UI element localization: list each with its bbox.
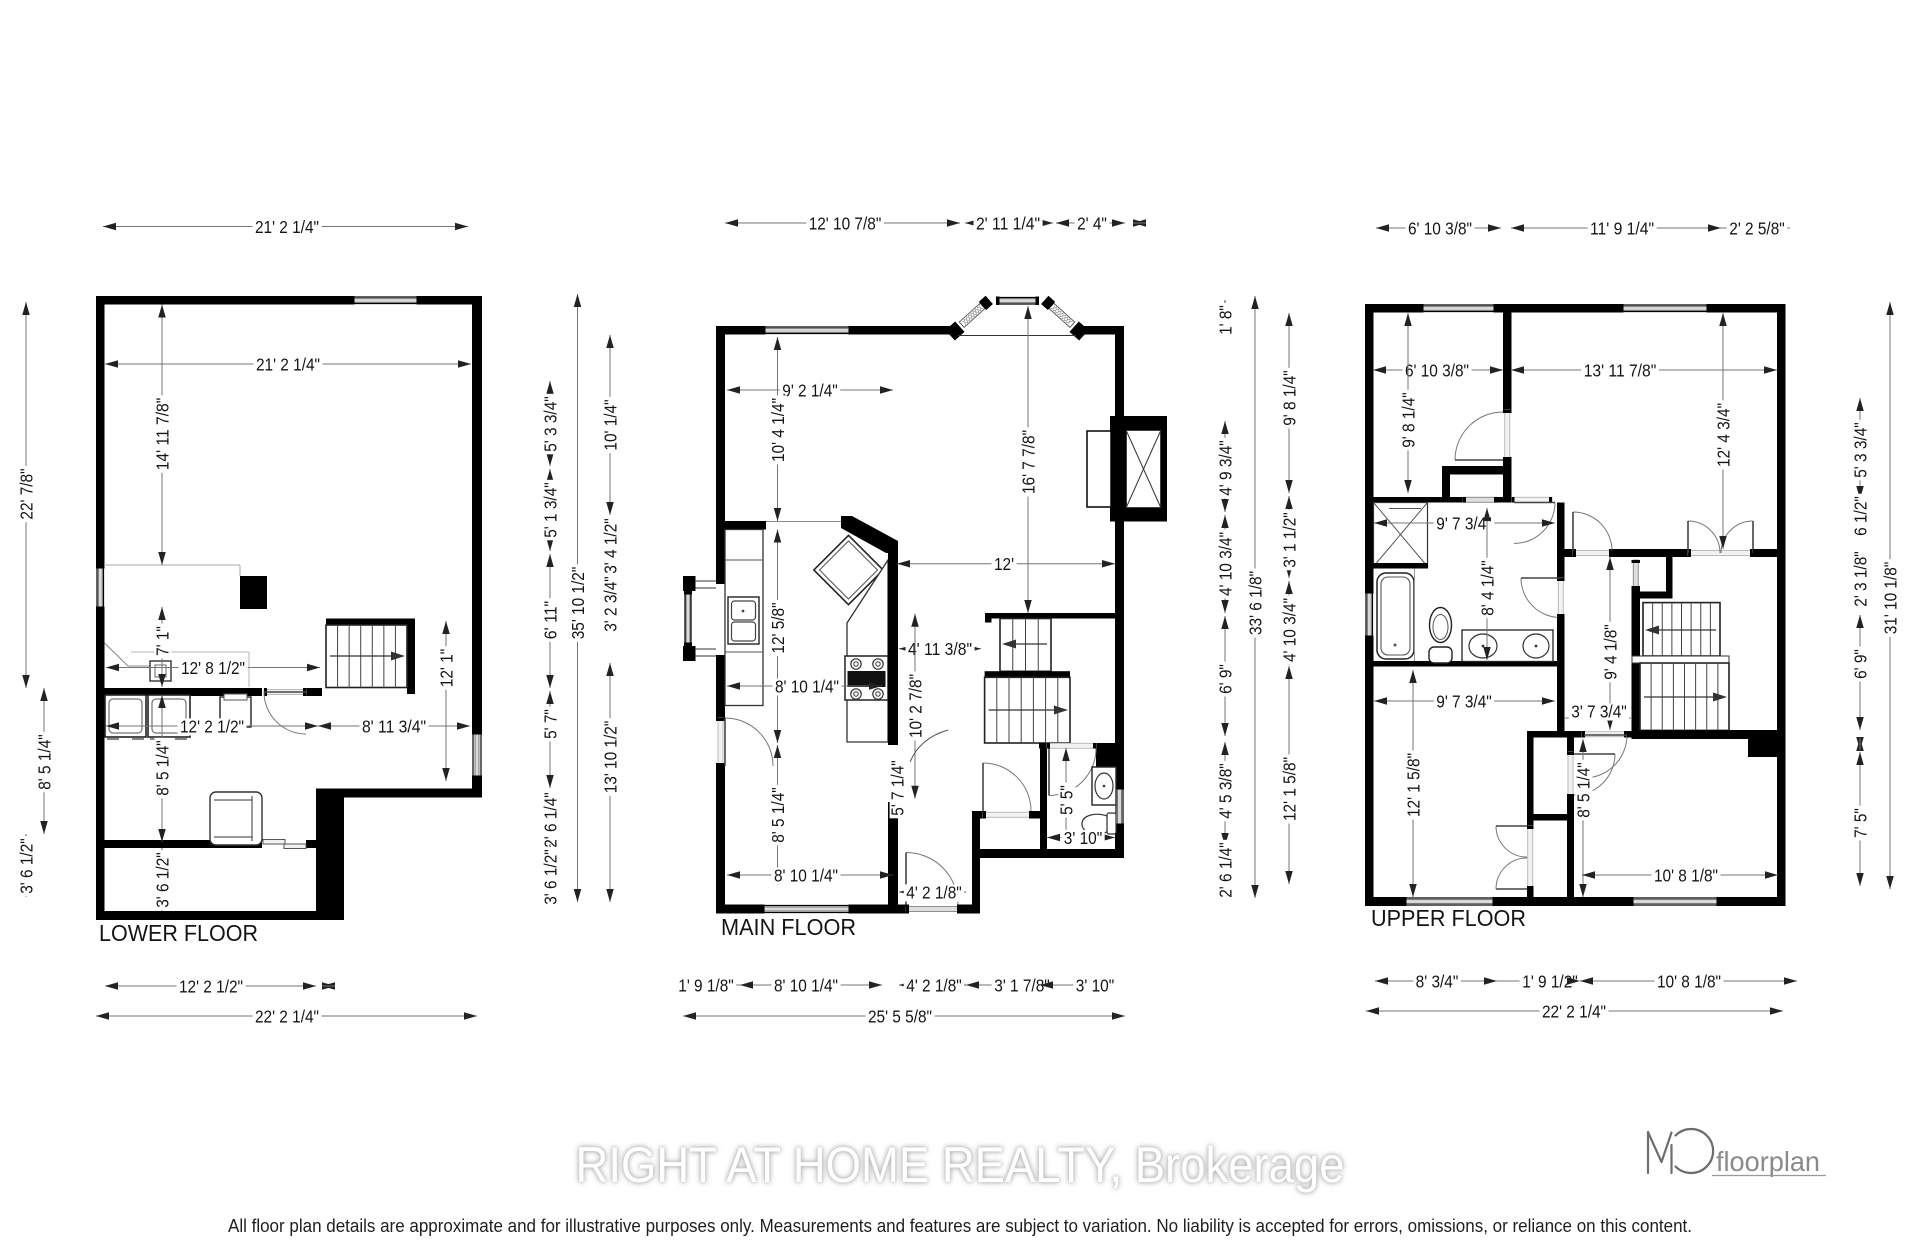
svg-text:22' 2 1/4": 22' 2 1/4" (1542, 1001, 1606, 1021)
svg-text:12': 12' (994, 554, 1014, 574)
svg-text:13' 10 1/2": 13' 10 1/2" (600, 721, 620, 794)
svg-text:4' 9 3/4": 4' 9 3/4" (1215, 440, 1235, 496)
svg-text:2' 6 1/4": 2' 6 1/4" (540, 792, 560, 848)
svg-text:3' 2 3/4": 3' 2 3/4" (600, 576, 620, 632)
svg-text:4' 10 3/4": 4' 10 3/4" (1215, 532, 1235, 596)
svg-text:21' 2 1/4": 21' 2 1/4" (256, 354, 320, 374)
svg-text:12' 1": 12' 1" (436, 649, 456, 687)
svg-text:8' 10 1/4": 8' 10 1/4" (774, 865, 838, 885)
svg-text:8' 4 1/4": 8' 4 1/4" (1477, 560, 1497, 616)
svg-text:5' 1 3/4": 5' 1 3/4" (540, 482, 560, 538)
svg-text:7' 5": 7' 5" (1850, 808, 1870, 838)
svg-text:5' 7": 5' 7" (540, 709, 560, 739)
svg-text:5' 3 3/4": 5' 3 3/4" (1850, 422, 1870, 478)
svg-text:21' 2 1/4": 21' 2 1/4" (255, 217, 319, 237)
svg-text:4' 5 3/8": 4' 5 3/8" (1215, 763, 1235, 819)
svg-text:3' 7 3/4": 3' 7 3/4" (1571, 701, 1627, 721)
svg-text:12' 2 1/2": 12' 2 1/2" (179, 976, 243, 996)
svg-text:6' 11": 6' 11" (540, 601, 560, 639)
svg-text:UPPER FLOOR: UPPER FLOOR (1371, 905, 1526, 931)
svg-text:12' 4 3/4": 12' 4 3/4" (1713, 403, 1733, 467)
svg-text:8' 10 1/4": 8' 10 1/4" (775, 676, 839, 696)
svg-text:2' 11 1/4": 2' 11 1/4" (976, 213, 1040, 233)
svg-text:1' 9 1/8": 1' 9 1/8" (678, 975, 734, 995)
svg-text:4' 2 1/8": 4' 2 1/8" (906, 882, 962, 902)
svg-text:floorplan: floorplan (1716, 1146, 1820, 1177)
svg-text:3' 6 1/2": 3' 6 1/2" (152, 852, 172, 908)
svg-text:8' 5 1/4": 8' 5 1/4" (768, 787, 788, 843)
svg-text:4' 11 3/8": 4' 11 3/8" (908, 639, 972, 659)
svg-text:5' 7 1/4": 5' 7 1/4" (888, 760, 908, 816)
svg-text:33' 6 1/8": 33' 6 1/8" (1245, 571, 1265, 635)
svg-text:10' 8 1/8": 10' 8 1/8" (1657, 971, 1721, 991)
svg-text:12' 5/8": 12' 5/8" (768, 602, 788, 653)
svg-text:22' 7/8": 22' 7/8" (16, 468, 36, 519)
svg-text:MAIN FLOOR: MAIN FLOOR (721, 914, 856, 940)
svg-text:2' 4": 2' 4" (1077, 213, 1107, 233)
svg-text:13' 11 7/8": 13' 11 7/8" (1584, 360, 1657, 380)
svg-text:6' 9": 6' 9" (1215, 664, 1235, 694)
svg-text:All floor plan details are app: All floor plan details are approximate a… (228, 1216, 1692, 1236)
svg-text:3' 6 1/2": 3' 6 1/2" (540, 849, 560, 905)
svg-text:3' 10": 3' 10" (1076, 975, 1114, 995)
svg-text:3' 6 1/2": 3' 6 1/2" (16, 838, 36, 894)
svg-text:16' 7 7/8": 16' 7 7/8" (1018, 430, 1038, 494)
svg-text:6' 10 3/8": 6' 10 3/8" (1405, 360, 1469, 380)
svg-text:9' 8 1/4": 9' 8 1/4" (1279, 370, 1299, 426)
svg-text:31' 10 1/8": 31' 10 1/8" (1880, 562, 1900, 635)
svg-text:7' 1": 7' 1" (152, 626, 172, 656)
svg-text:10' 1/4": 10' 1/4" (600, 399, 620, 450)
svg-text:12' 10 7/8": 12' 10 7/8" (809, 213, 882, 233)
svg-text:8' 11 3/4": 8' 11 3/4" (362, 716, 426, 736)
svg-text:9' 2 1/4": 9' 2 1/4" (782, 380, 838, 400)
svg-text:8' 5 1/4": 8' 5 1/4" (152, 740, 172, 796)
svg-text:8' 3/4": 8' 3/4" (1416, 971, 1459, 991)
svg-text:8' 10 1/4": 8' 10 1/4" (774, 975, 838, 995)
svg-text:3' 1 1/2": 3' 1 1/2" (1279, 512, 1299, 568)
svg-text:22' 2 1/4": 22' 2 1/4" (255, 1006, 319, 1026)
svg-text:4' 2 1/8": 4' 2 1/8" (906, 975, 962, 995)
svg-text:4' 10 3/4": 4' 10 3/4" (1279, 598, 1299, 662)
svg-text:9' 7 3/4": 9' 7 3/4" (1436, 691, 1492, 711)
svg-text:10' 8 1/8": 10' 8 1/8" (1654, 865, 1718, 885)
svg-text:LOWER FLOOR: LOWER FLOOR (99, 920, 258, 946)
svg-text:9' 8 1/4": 9' 8 1/4" (1398, 392, 1418, 448)
svg-text:5' 3 3/4": 5' 3 3/4" (540, 396, 560, 452)
svg-text:12' 1 5/8": 12' 1 5/8" (1279, 757, 1299, 821)
svg-text:11' 9 1/4": 11' 9 1/4" (1590, 218, 1654, 238)
svg-text:12' 1 5/8": 12' 1 5/8" (1403, 753, 1423, 817)
svg-text:2' 6 1/4": 2' 6 1/4" (1215, 842, 1235, 898)
svg-text:9' 7 3/4": 9' 7 3/4" (1436, 513, 1492, 533)
svg-text:1' 8": 1' 8" (1215, 305, 1235, 335)
svg-text:9' 4 1/8": 9' 4 1/8" (1600, 624, 1620, 680)
svg-text:8' 5 1/4": 8' 5 1/4" (34, 734, 54, 790)
svg-text:10' 2 7/8": 10' 2 7/8" (905, 674, 925, 738)
svg-text:RIGHT AT HOME REALTY, Brokerag: RIGHT AT HOME REALTY, Brokerage (576, 1137, 1345, 1193)
svg-text:14' 11 7/8": 14' 11 7/8" (152, 398, 172, 471)
svg-text:10' 4 1/4": 10' 4 1/4" (768, 398, 788, 462)
svg-text:35' 10 1/2": 35' 10 1/2" (568, 567, 588, 640)
svg-text:2' 3 1/8": 2' 3 1/8" (1851, 551, 1871, 607)
svg-text:3' 10": 3' 10" (1064, 828, 1102, 848)
svg-text:6 1/2": 6 1/2" (1851, 496, 1871, 536)
svg-text:25' 5 5/8": 25' 5 5/8" (868, 1006, 932, 1026)
svg-text:5' 5": 5' 5" (1056, 785, 1076, 815)
svg-text:3' 4 1/2": 3' 4 1/2" (600, 518, 620, 574)
svg-text:12' 8 1/2": 12' 8 1/2" (181, 658, 245, 678)
svg-text:2' 2 5/8": 2' 2 5/8" (1729, 219, 1785, 239)
svg-text:6' 10 3/8": 6' 10 3/8" (1408, 218, 1472, 238)
svg-text:8' 5 1/4": 8' 5 1/4" (1573, 762, 1593, 818)
svg-text:6' 9": 6' 9" (1850, 649, 1870, 679)
svg-text:12' 2 1/2": 12' 2 1/2" (180, 716, 244, 736)
